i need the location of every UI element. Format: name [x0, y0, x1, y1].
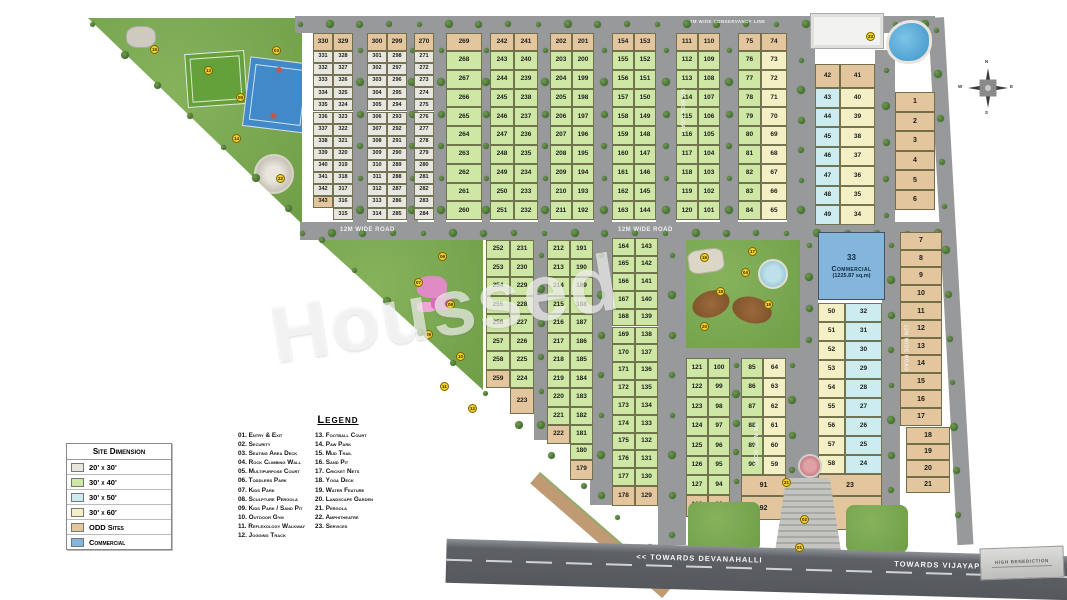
plot-178: 178 — [612, 486, 635, 506]
plot-109: 109 — [698, 51, 720, 70]
plot-69: 69 — [761, 126, 787, 145]
plot-62: 62 — [763, 397, 786, 417]
plot-338: 338 — [313, 136, 333, 148]
plot-265: 265 — [446, 107, 482, 126]
plot-314: 314 — [367, 208, 387, 220]
plot-73: 73 — [761, 51, 787, 70]
plot-207: 207 — [550, 126, 572, 145]
plot-77: 77 — [738, 70, 761, 89]
plot-310: 310 — [367, 160, 387, 172]
legend-panel: Legend 01. Entry & Exit02. Security03. S… — [238, 414, 438, 541]
plot-129: 129 — [635, 486, 658, 506]
road-label: 7m Wide Conservancy Line — [690, 19, 766, 24]
plot-86: 86 — [741, 378, 763, 398]
plot-246: 246 — [490, 107, 514, 126]
plot-284: 284 — [414, 208, 434, 220]
plot-147: 147 — [634, 145, 656, 164]
road-label: 9m Wide Road — [679, 89, 685, 133]
amenity-badge-01: 01 — [795, 543, 804, 552]
plot-130: 130 — [635, 468, 658, 486]
plot-118: 118 — [676, 164, 698, 183]
plot-266: 266 — [446, 89, 482, 108]
plot-20: 20 — [906, 460, 950, 477]
plot-305: 305 — [367, 99, 387, 111]
amenity-badge-17: 17 — [748, 247, 757, 256]
plot-189: 189 — [570, 277, 593, 296]
plot-3: 3 — [895, 131, 935, 151]
plot-78: 78 — [738, 89, 761, 108]
plot-169: 169 — [612, 327, 635, 345]
plot-269: 269 — [446, 33, 482, 51]
plot-304: 304 — [367, 87, 387, 99]
plot-215: 215 — [547, 296, 570, 315]
site-dimension-rows: 20' x 30'30' x 40'30' x 50'30' x 60'ODD … — [67, 460, 171, 549]
plot-157: 157 — [612, 89, 634, 108]
amenity-badge-06: 06 — [438, 252, 447, 261]
plot-248: 248 — [490, 145, 514, 164]
plot-283: 283 — [414, 196, 434, 208]
legend-item: 23. Services — [315, 523, 373, 530]
plot-75: 75 — [738, 33, 761, 51]
plot-1: 1 — [895, 92, 935, 112]
dimension-label: ODD Sites — [89, 523, 124, 532]
plot-271: 271 — [414, 51, 434, 63]
plot-84: 84 — [738, 201, 761, 220]
plot-275: 275 — [414, 99, 434, 111]
plot-26: 26 — [845, 417, 882, 436]
plot-309: 309 — [367, 148, 387, 160]
plot-153: 153 — [634, 33, 656, 51]
commercial-name: Commercial — [832, 266, 872, 273]
legend-item: 11. Reflexology Walkway — [238, 523, 305, 530]
plot-103: 103 — [698, 164, 720, 183]
plot-63: 63 — [763, 378, 786, 398]
plot-2: 2 — [895, 112, 935, 132]
site-dimension-row: 30' x 50' — [67, 490, 171, 505]
plot-302: 302 — [367, 63, 387, 75]
plot-175: 175 — [612, 433, 635, 451]
dimension-swatch — [71, 523, 84, 532]
plot-82: 82 — [738, 164, 761, 183]
plot-135: 135 — [635, 380, 658, 398]
plot-111: 111 — [676, 33, 698, 51]
plot-235: 235 — [514, 145, 538, 164]
plot-159: 159 — [612, 126, 634, 145]
plot-198: 198 — [572, 89, 594, 108]
plot-35: 35 — [840, 186, 875, 206]
plot-342: 342 — [313, 184, 333, 196]
compass-s: S — [985, 110, 988, 115]
plot-343: 343 — [313, 196, 333, 208]
legend-item: 19. Water Feature — [315, 487, 373, 494]
amenity-badge-09: 09 — [424, 330, 433, 339]
plot-206: 206 — [550, 107, 572, 126]
plot-67: 67 — [761, 164, 787, 183]
legend-item: 02. Security — [238, 441, 305, 448]
plot-339: 339 — [313, 148, 333, 160]
plot-183: 183 — [570, 388, 593, 407]
plot-95: 95 — [708, 456, 730, 476]
plot-298: 298 — [387, 51, 407, 63]
amenity-badge-20: 20 — [700, 322, 709, 331]
entrance-plaza — [760, 452, 856, 562]
plot-180: 180 — [570, 444, 593, 460]
plot-276: 276 — [414, 112, 434, 124]
compass-star — [964, 64, 1012, 112]
dimension-swatch — [71, 508, 84, 517]
plot-10: 10 — [900, 285, 942, 303]
amenity-badge-04: 04 — [741, 268, 750, 277]
plot-104: 104 — [698, 145, 720, 164]
plot-132: 132 — [635, 433, 658, 451]
plot-334: 334 — [313, 87, 333, 99]
plot-312: 312 — [367, 184, 387, 196]
plot-247: 247 — [490, 126, 514, 145]
plot-320: 320 — [333, 148, 353, 160]
legend-title: Legend — [238, 414, 438, 426]
plot-184: 184 — [570, 370, 593, 389]
amenity-badge-03: 03 — [272, 46, 281, 55]
plot-68: 68 — [761, 145, 787, 164]
dimension-swatch — [71, 493, 84, 502]
plot-222: 222 — [547, 425, 570, 444]
plot-83: 83 — [738, 183, 761, 202]
plot-250: 250 — [490, 183, 514, 202]
plot-332: 332 — [313, 63, 333, 75]
plot-102: 102 — [698, 183, 720, 202]
plot-185: 185 — [570, 351, 593, 370]
plot-231: 231 — [510, 240, 534, 259]
road-label: 12m Wide Road — [902, 325, 908, 372]
plot-187: 187 — [570, 314, 593, 333]
plot-244: 244 — [490, 70, 514, 89]
plot-241: 241 — [514, 33, 538, 51]
plot-164: 164 — [612, 238, 635, 256]
fountain — [798, 454, 822, 478]
legend-item: 13. Football Court — [315, 432, 373, 439]
plot-28: 28 — [845, 379, 882, 398]
plot-335: 335 — [313, 99, 333, 111]
plot-34: 34 — [840, 205, 875, 225]
plot-274: 274 — [414, 87, 434, 99]
plot-179: 179 — [570, 460, 593, 480]
plot-239: 239 — [514, 70, 538, 89]
legend-item: 03. Seating Area Deck — [238, 450, 305, 457]
plot-219: 219 — [547, 370, 570, 389]
plot-221: 221 — [547, 407, 570, 426]
plot-211: 211 — [550, 201, 572, 220]
plot-144: 144 — [634, 201, 656, 220]
plot-227: 227 — [510, 314, 534, 333]
plot-186: 186 — [570, 333, 593, 352]
plot-255: 255 — [486, 296, 510, 315]
plot-15: 15 — [900, 373, 942, 391]
plot-181: 181 — [570, 425, 593, 444]
plot-76: 76 — [738, 51, 761, 70]
site-dimension-row: ODD Sites — [67, 520, 171, 535]
amenity-badge-08: 08 — [446, 300, 455, 309]
plot-18: 18 — [906, 427, 950, 444]
plot-182: 182 — [570, 407, 593, 426]
plot-123: 123 — [686, 397, 708, 417]
road-label: 12m Wide Road — [618, 227, 673, 233]
plot-270: 270 — [414, 33, 434, 51]
plot-61: 61 — [763, 417, 786, 437]
dimension-label: 20' x 30' — [89, 463, 117, 472]
plot-79: 79 — [738, 107, 761, 126]
plot-237: 237 — [514, 107, 538, 126]
plot-224: 224 — [510, 370, 534, 389]
plot-87: 87 — [741, 397, 763, 417]
plot-66: 66 — [761, 183, 787, 202]
plot-188: 188 — [570, 296, 593, 315]
plot-145: 145 — [634, 183, 656, 202]
plot-299: 299 — [387, 33, 407, 51]
plot-303: 303 — [367, 75, 387, 87]
site-dimension-title: Site Dimension — [67, 444, 171, 460]
amenity-badge-13: 13 — [204, 66, 213, 75]
amenity-badge-07: 07 — [414, 278, 423, 287]
plot-218: 218 — [547, 351, 570, 370]
plot-291: 291 — [387, 136, 407, 148]
plot-165: 165 — [612, 256, 635, 274]
dimension-label: 30' x 40' — [89, 478, 117, 487]
plot-33-commercial: 33 Commercial (1225.87 sq.m) — [818, 232, 885, 300]
legend-item: 16. Sand Pit — [315, 459, 373, 466]
plot-167: 167 — [612, 291, 635, 309]
plot-158: 158 — [612, 107, 634, 126]
plot-256: 256 — [486, 314, 510, 333]
site-dimension-panel: Site Dimension 20' x 30'30' x 40'30' x 5… — [66, 443, 172, 550]
plot-286: 286 — [387, 196, 407, 208]
plot-264: 264 — [446, 126, 482, 145]
plot-294: 294 — [387, 99, 407, 111]
plot-331: 331 — [313, 51, 333, 63]
plot-81: 81 — [738, 145, 761, 164]
plot-278: 278 — [414, 136, 434, 148]
plot-268: 268 — [446, 51, 482, 70]
plot-220: 220 — [547, 388, 570, 407]
plot-131: 131 — [635, 450, 658, 468]
plot-190: 190 — [570, 259, 593, 278]
plot-4: 4 — [895, 151, 935, 171]
plot-156: 156 — [612, 70, 634, 89]
plot-42: 42 — [815, 64, 840, 88]
plot-172: 172 — [612, 380, 635, 398]
plot-292: 292 — [387, 124, 407, 136]
plot-202: 202 — [550, 33, 572, 51]
plot-196: 196 — [572, 126, 594, 145]
plot-6: 6 — [895, 190, 935, 210]
plot-65: 65 — [761, 201, 787, 220]
amenity-badge-21: 21 — [782, 478, 791, 487]
plot-37: 37 — [840, 147, 875, 167]
clubhouse — [810, 13, 884, 49]
legend-item: 01. Entry & Exit — [238, 432, 305, 439]
legend-item: 21. Pergola — [315, 505, 373, 512]
plot-293: 293 — [387, 112, 407, 124]
compass-n: N — [985, 59, 988, 64]
amenity-badge-05: 05 — [236, 93, 245, 102]
plot-313: 313 — [367, 196, 387, 208]
plot-51: 51 — [818, 322, 845, 341]
developer-logo-text: HIGH BENEDICTION — [995, 558, 1049, 565]
plot-7: 7 — [900, 232, 942, 250]
legend-list-right: 13. Football Court14. Paw Park15. Mud Tr… — [315, 432, 373, 541]
plot-19: 19 — [906, 444, 950, 461]
plot-340: 340 — [313, 160, 333, 172]
plot-171: 171 — [612, 362, 635, 380]
plot-217: 217 — [547, 333, 570, 352]
plot-94: 94 — [708, 475, 730, 495]
plot-281: 281 — [414, 172, 434, 184]
plot-72: 72 — [761, 70, 787, 89]
plot-134: 134 — [635, 397, 658, 415]
plot-306: 306 — [367, 112, 387, 124]
plot-205: 205 — [550, 89, 572, 108]
plot-119: 119 — [676, 183, 698, 202]
plot-259: 259 — [486, 370, 510, 389]
plot-139: 139 — [635, 309, 658, 327]
compass-w: W — [958, 84, 962, 89]
plot-280: 280 — [414, 160, 434, 172]
plot-333: 333 — [313, 75, 333, 87]
plot-154: 154 — [612, 33, 634, 51]
plot-142: 142 — [635, 256, 658, 274]
plot-209: 209 — [550, 164, 572, 183]
plot-337: 337 — [313, 124, 333, 136]
plot-101: 101 — [698, 201, 720, 220]
plot-121: 121 — [686, 358, 708, 378]
plot-295: 295 — [387, 87, 407, 99]
plot-245: 245 — [490, 89, 514, 108]
site-dimension-row: 30' x 60' — [67, 505, 171, 520]
amenity-badge-16: 16 — [700, 253, 709, 262]
plot-140: 140 — [635, 291, 658, 309]
compass-rose: N E S W — [964, 64, 1012, 112]
plot-330: 330 — [313, 33, 333, 51]
plot-277: 277 — [414, 124, 434, 136]
plot-133: 133 — [635, 415, 658, 433]
legend-item: 08. Sculpture Pergola — [238, 496, 305, 503]
amenity-badge-23: 23 — [866, 32, 875, 41]
plot-137: 137 — [635, 344, 658, 362]
plot-74: 74 — [761, 33, 787, 51]
plot-54: 54 — [818, 379, 845, 398]
amenity-badge-15: 15 — [150, 45, 159, 54]
amenity-badge-22: 22 — [276, 174, 285, 183]
legend-item: 04. Rock Climbing Wall — [238, 459, 305, 466]
site-dimension-row: 30' x 40' — [67, 475, 171, 490]
site-dimension-row: Commercial — [67, 535, 171, 549]
plot-141: 141 — [635, 273, 658, 291]
plot-161: 161 — [612, 164, 634, 183]
amenity-badge-14: 14 — [232, 134, 241, 143]
amenity-badge-18: 18 — [716, 287, 725, 296]
plot-213: 213 — [547, 259, 570, 278]
legend-item: 15. Mud Trail — [315, 450, 373, 457]
plot-49: 49 — [815, 205, 840, 225]
plot-43: 43 — [815, 88, 840, 108]
commercial-area: (1225.87 sq.m) — [833, 273, 871, 279]
plot-257: 257 — [486, 333, 510, 352]
plot-48: 48 — [815, 186, 840, 206]
plot-27: 27 — [845, 398, 882, 417]
plot-300: 300 — [367, 33, 387, 51]
plot-55: 55 — [818, 398, 845, 417]
plot-238: 238 — [514, 89, 538, 108]
plot-232: 232 — [514, 201, 538, 220]
plot-200: 200 — [572, 51, 594, 70]
plot-258: 258 — [486, 351, 510, 370]
legend-item: 07. Kids Park — [238, 487, 305, 494]
plot-261: 261 — [446, 183, 482, 202]
plot-272: 272 — [414, 63, 434, 75]
plot-29: 29 — [845, 360, 882, 379]
plot-108: 108 — [698, 70, 720, 89]
plot-279: 279 — [414, 148, 434, 160]
plot-336: 336 — [313, 112, 333, 124]
plot-319: 319 — [333, 160, 353, 172]
plot-204: 204 — [550, 70, 572, 89]
commercial-number: 33 — [847, 253, 856, 262]
plot-112: 112 — [676, 51, 698, 70]
plot-52: 52 — [818, 341, 845, 360]
plot-17: 17 — [900, 408, 942, 426]
plot-307: 307 — [367, 124, 387, 136]
dimension-label: 30' x 60' — [89, 508, 117, 517]
plot-126: 126 — [686, 456, 708, 476]
plot-324: 324 — [333, 99, 353, 111]
dimension-label: Commercial — [89, 538, 125, 547]
plot-230: 230 — [510, 259, 534, 278]
plot-105: 105 — [698, 126, 720, 145]
plot-321: 321 — [333, 136, 353, 148]
plot-252: 252 — [486, 240, 510, 259]
amenity-badge-12: 12 — [468, 404, 477, 413]
plot-41: 41 — [840, 64, 875, 88]
plot-234: 234 — [514, 164, 538, 183]
plot-253: 253 — [486, 259, 510, 278]
plot-287: 287 — [387, 184, 407, 196]
compass-e: E — [1010, 84, 1013, 89]
legend-item: 22. Amphitheatre — [315, 514, 373, 521]
plot-285: 285 — [387, 208, 407, 220]
plot-226: 226 — [510, 333, 534, 352]
plot-240: 240 — [514, 51, 538, 70]
plot-50: 50 — [818, 303, 845, 322]
swimming-pool — [886, 20, 932, 64]
plot-46: 46 — [815, 147, 840, 167]
plot-327: 327 — [333, 63, 353, 75]
plot-208: 208 — [550, 145, 572, 164]
direction-sign-devanahalli: << Towards Devanahalli — [636, 552, 763, 565]
entrance-garden — [688, 502, 760, 552]
plot-5: 5 — [895, 170, 935, 190]
plot-100: 100 — [708, 358, 730, 378]
legend-item: 14. Paw Park — [315, 441, 373, 448]
plot-107: 107 — [698, 89, 720, 108]
dimension-swatch — [71, 478, 84, 487]
plot-40: 40 — [840, 88, 875, 108]
plot-322: 322 — [333, 124, 353, 136]
legend-item: 18. Yoga Deck — [315, 477, 373, 484]
plot-151: 151 — [634, 70, 656, 89]
plot-328: 328 — [333, 51, 353, 63]
plot-120: 120 — [676, 201, 698, 220]
plot-124: 124 — [686, 417, 708, 437]
plot-191: 191 — [570, 240, 593, 259]
